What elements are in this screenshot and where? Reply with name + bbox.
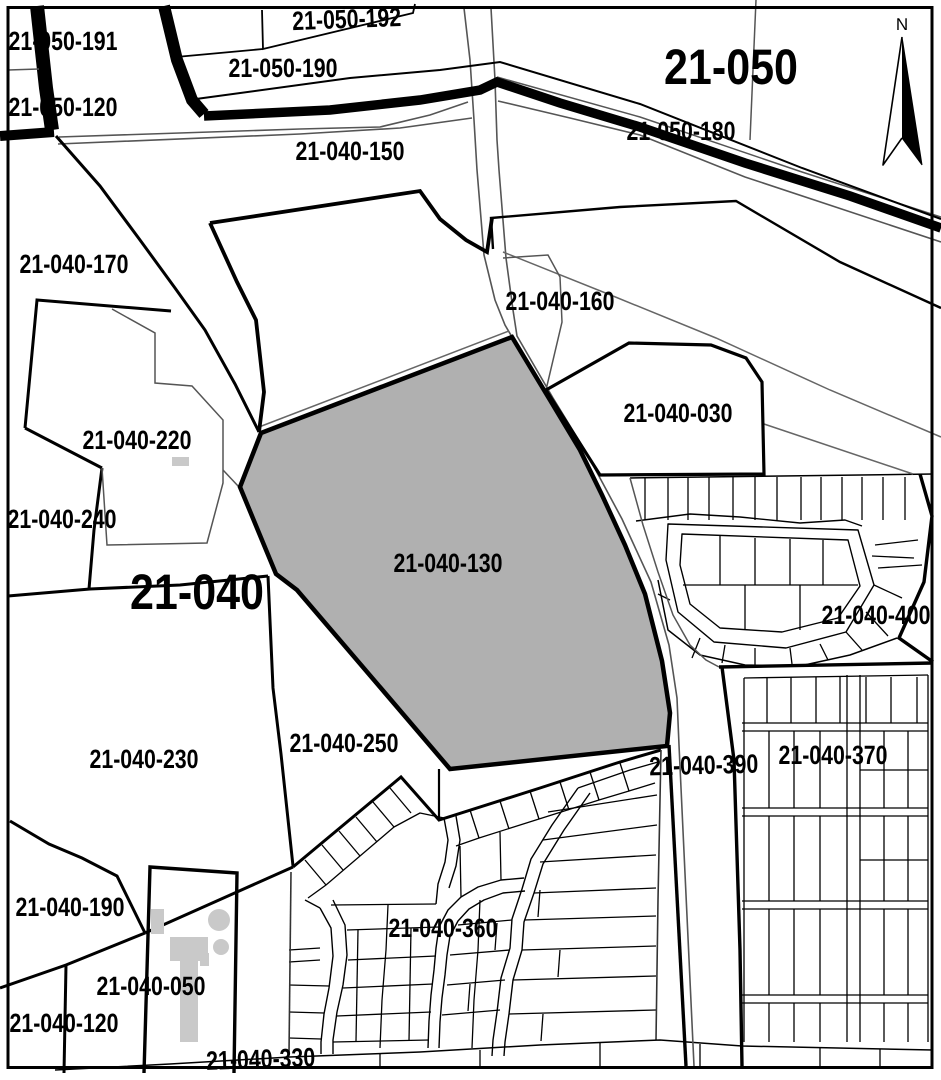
svg-text:21-040-130: 21-040-130 (394, 548, 503, 578)
svg-text:21-040-370: 21-040-370 (779, 740, 888, 770)
svg-text:21-040-220: 21-040-220 (83, 425, 192, 455)
svg-text:21-050-191: 21-050-191 (9, 26, 118, 56)
svg-text:21-040-360: 21-040-360 (389, 913, 498, 943)
svg-text:21-040-250: 21-040-250 (290, 728, 399, 758)
svg-text:21-040-330: 21-040-330 (206, 1042, 316, 1076)
svg-text:N: N (896, 15, 908, 34)
svg-text:21-040-240: 21-040-240 (8, 504, 117, 534)
svg-text:21-050-192: 21-050-192 (292, 2, 402, 36)
svg-text:21-040-170: 21-040-170 (20, 249, 129, 279)
svg-text:21-050-190: 21-050-190 (229, 53, 338, 83)
svg-text:21-040-120: 21-040-120 (10, 1008, 119, 1038)
svg-text:21-040-190: 21-040-190 (16, 892, 125, 922)
svg-text:21-040: 21-040 (130, 564, 264, 620)
svg-text:21-050: 21-050 (664, 39, 798, 95)
svg-text:21-050-120: 21-050-120 (9, 92, 118, 122)
svg-text:21-040-390: 21-040-390 (649, 749, 759, 782)
svg-text:21-040-030: 21-040-030 (624, 398, 733, 428)
svg-text:21-040-050: 21-040-050 (97, 971, 206, 1001)
svg-text:21-040-160: 21-040-160 (506, 286, 615, 316)
svg-text:21-040-400: 21-040-400 (822, 600, 931, 630)
svg-text:21-040-150: 21-040-150 (296, 136, 405, 166)
svg-text:21-050-180: 21-050-180 (627, 116, 736, 146)
svg-text:21-040-230: 21-040-230 (90, 744, 199, 774)
